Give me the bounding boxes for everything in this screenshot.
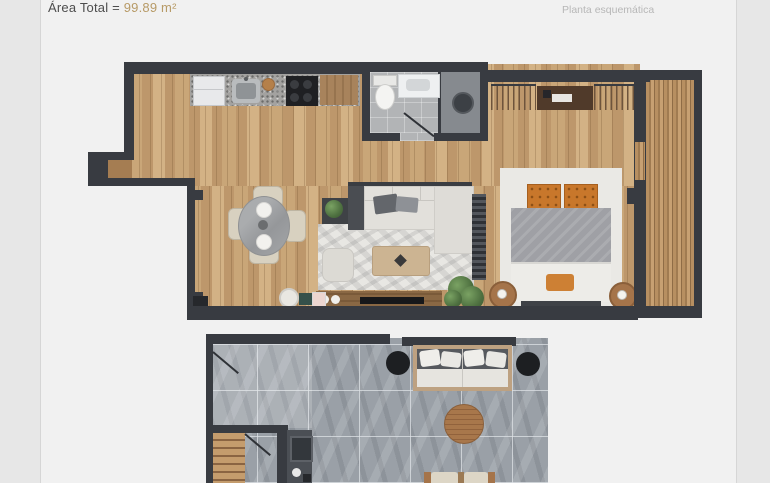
counter-bowl (292, 468, 301, 477)
outdoor-pillow (463, 349, 485, 367)
terrace-wall-top (206, 334, 390, 344)
stairs (213, 433, 245, 483)
planter-pot (386, 351, 410, 375)
lounger-cushion (464, 472, 488, 483)
outdoor-sofa-seam (462, 349, 463, 387)
outdoor-pillow (440, 351, 462, 368)
outdoor-pillow (485, 351, 507, 369)
terrace-wall-left (206, 344, 213, 483)
planter-pot (516, 352, 540, 376)
lounger-frame (488, 472, 495, 483)
counter-item (303, 474, 311, 482)
terrace-floor-plan (0, 0, 770, 483)
terrace-wall-inner-v (277, 430, 287, 483)
outdoor-table (444, 404, 484, 444)
lounger-cushion (431, 472, 458, 483)
terrace-room-floor (212, 343, 312, 428)
grill-sink (290, 436, 313, 462)
lounger-frame (424, 472, 431, 483)
outdoor-pillow (419, 349, 441, 368)
floorplan-sheet-canvas: Área Total = 99.89 m² Planta esquemática (0, 0, 770, 483)
